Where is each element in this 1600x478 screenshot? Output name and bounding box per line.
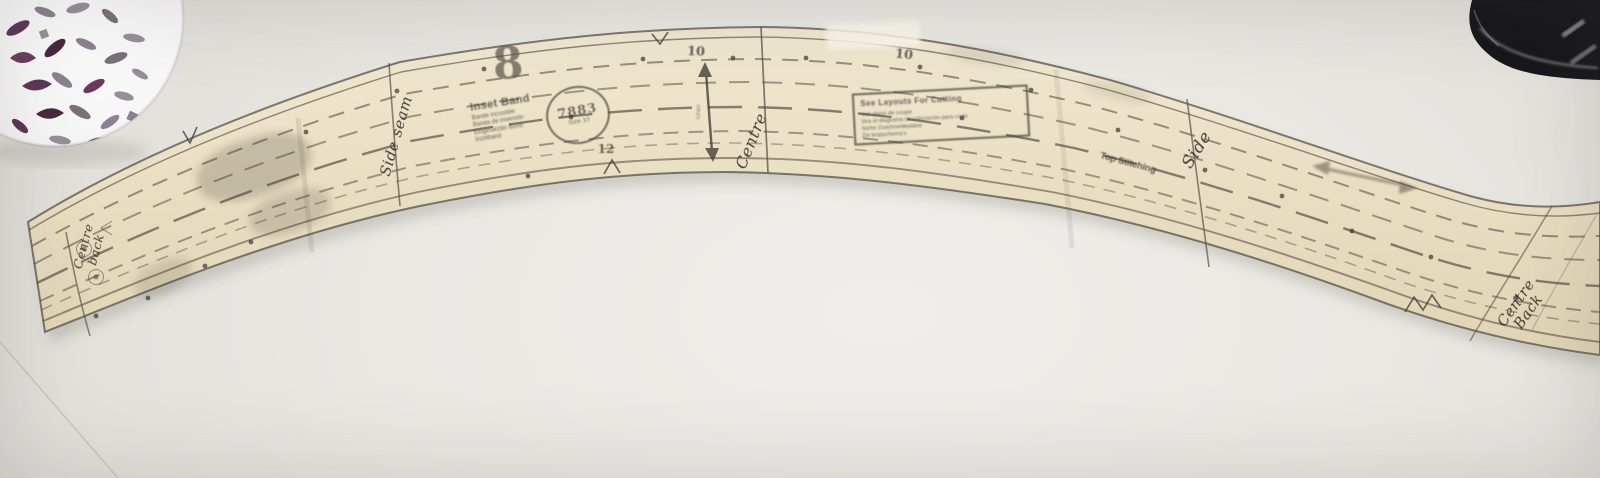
black-appliance-corner	[1469, 0, 1600, 80]
tape-patch	[826, 20, 921, 49]
size-number-bottom: 12	[598, 142, 615, 156]
scene-svg	[0, 0, 1600, 478]
photo-canvas: 8 10 10 12 7883 Size 10 Inset Band Bande…	[0, 0, 1600, 478]
size-number-top-1: 10	[687, 44, 706, 60]
grainline-label: Grain	[695, 104, 702, 119]
size-number-large: 8	[491, 37, 525, 90]
cutting-layout-box: See Layouts For Cutting Voir plans de co…	[852, 84, 1030, 145]
table-crease-line	[0, 342, 118, 478]
lace-cup	[0, 0, 183, 166]
size-number-top-2: 10	[894, 47, 914, 64]
